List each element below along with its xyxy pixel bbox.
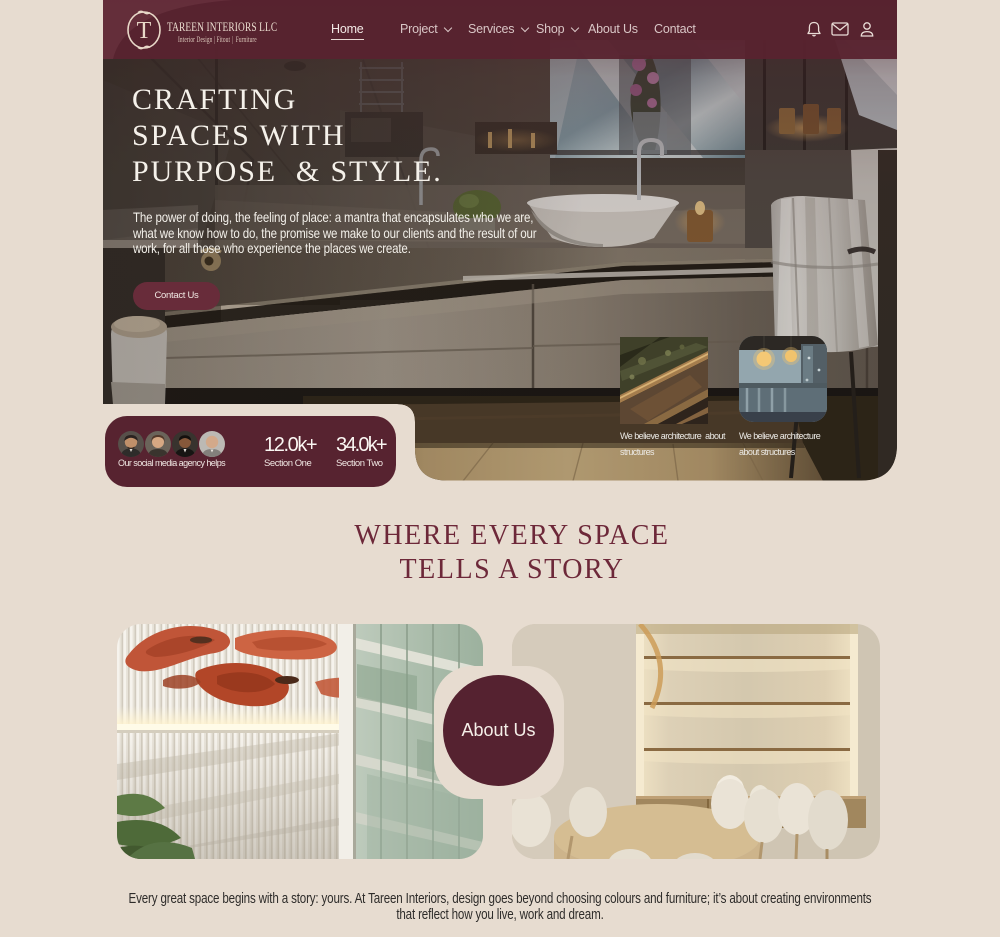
svg-text:T: T bbox=[137, 18, 152, 44]
